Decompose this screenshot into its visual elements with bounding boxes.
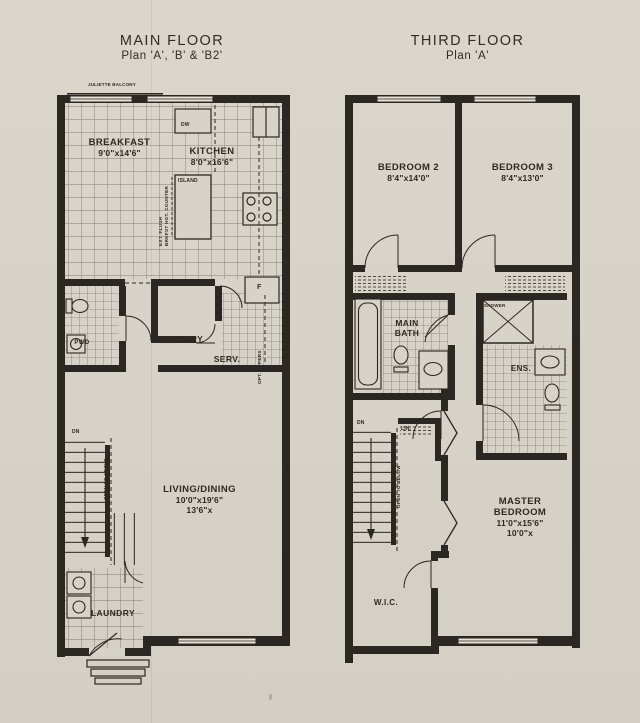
dishwasher-label: DW xyxy=(181,122,190,128)
juliette-balcony-label: JULIETTE BALCONY xyxy=(88,82,136,87)
island-counter-note: EXT. FLUSH BRKFST HGT. COUNTER xyxy=(158,188,169,246)
main-floor-plan xyxy=(55,93,292,693)
fridge-label: F xyxy=(257,284,261,291)
kitchen-label: KITCHEN 8'0"x16'6" xyxy=(172,146,252,167)
master-bedroom-label: MASTER BEDROOM 11'0"x15'6" 10'0"x xyxy=(475,496,565,538)
living-dining-label: LIVING/DINING 10'0"x19'6" 13'6"x xyxy=(142,484,257,515)
walk-in-closet-label: W.I.C. xyxy=(363,598,409,607)
stairs-dn-label-main: DN xyxy=(72,429,80,435)
third-floor-title: THIRD FLOOR xyxy=(411,33,525,49)
main-floor-title: MAIN FLOOR xyxy=(120,33,224,49)
main-floor-subtitle: Plan 'A', 'B' & 'B2' xyxy=(121,50,222,62)
third-floor-stairs xyxy=(353,428,397,553)
toilet-fixture xyxy=(545,384,560,410)
open-to-below-note: OPEN TO BELOW xyxy=(396,452,401,508)
toilet-fixture xyxy=(394,346,408,372)
bathtub-fixture xyxy=(355,299,381,389)
ensuite-label: ENS. xyxy=(500,364,542,373)
bedroom3-label: BEDROOM 3 8'4"x13'0" xyxy=(480,162,565,183)
pantry-cabinet xyxy=(245,277,279,303)
washer-icon xyxy=(67,572,91,594)
servery-label: SERV. xyxy=(203,354,251,364)
pantry-label: PANTRY xyxy=(156,334,214,344)
island-label: ISLAND xyxy=(178,178,198,184)
opt-uppers-note: OPT. UPPERS xyxy=(257,318,262,384)
main-floor-title-block: MAIN FLOOR Plan 'A', 'B' & 'B2' xyxy=(92,33,252,62)
bedroom2-label: BEDROOM 2 8'4"x14'0" xyxy=(366,162,451,183)
kitchen-island xyxy=(172,175,211,239)
main-bath-label: MAIN BATH xyxy=(383,318,431,338)
third-floor-title-block: THIRD FLOOR Plan 'A' xyxy=(390,33,545,62)
toilet-fixture xyxy=(66,299,88,313)
powder-room-label: PWD xyxy=(66,340,98,347)
laundry-label: LAUNDRY xyxy=(82,608,144,618)
dishwasher-icon xyxy=(175,109,211,133)
third-floor-subtitle: Plan 'A' xyxy=(446,50,489,62)
open-to-above-note: OPEN TO ABOVE xyxy=(103,448,108,500)
scanned-floorplan-page: MAIN FLOOR Plan 'A', 'B' & 'B2' THIRD FL… xyxy=(0,0,640,723)
stove-icon xyxy=(243,193,277,225)
main-floor-tile-floor xyxy=(65,103,282,648)
shower-label: SHOWER xyxy=(484,303,505,308)
stairs-dn-label-third: DN xyxy=(357,420,365,426)
breakfast-label: BREAKFAST 9'0"x14'6" xyxy=(72,137,167,158)
sink-fixture xyxy=(419,351,448,389)
linen-label: LIN. xyxy=(401,426,411,432)
front-steps xyxy=(87,660,149,684)
paper-speck xyxy=(269,694,272,700)
